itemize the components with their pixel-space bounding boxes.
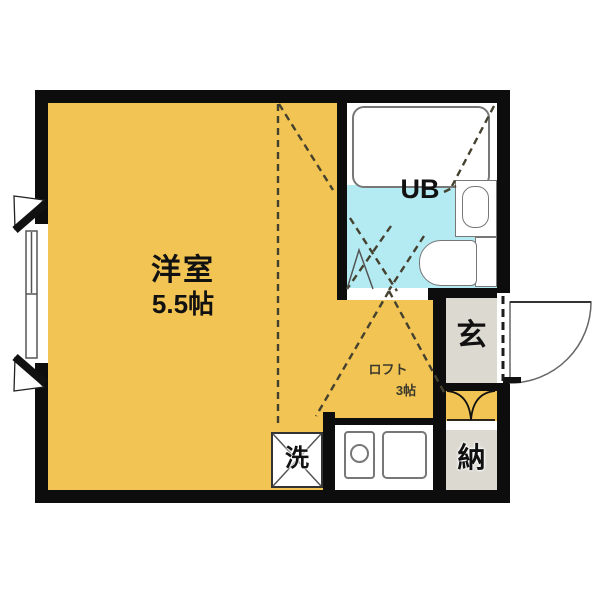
closet-front-floor [446, 391, 497, 421]
loft-name: ロフト [348, 363, 428, 376]
floorplan: 洋室 5.5帖 UB 玄 納 洗 ロフト 3帖 [0, 0, 600, 600]
washbasin-bowl [462, 186, 489, 228]
storage-threshold [446, 421, 497, 430]
stove-burner [350, 444, 369, 463]
main-room-size: 5.5帖 [128, 291, 238, 317]
loft-size: 3帖 [366, 384, 446, 397]
entrance-label: 玄 [446, 321, 497, 351]
unit-bath-label: UB [388, 176, 452, 203]
entry-doorway [497, 293, 510, 383]
window-opening [35, 224, 48, 363]
entry-door-swing [510, 302, 591, 383]
toilet-bowl [419, 240, 477, 286]
kitchen-sink [382, 431, 427, 479]
kitchen-left-wall [323, 412, 335, 503]
bath-door-opening [347, 288, 428, 300]
storage-label: 納 [446, 444, 497, 472]
main-room-name: 洋室 [128, 256, 238, 286]
washer-label: 洗 [271, 447, 323, 471]
kitchen-top-wall [335, 418, 433, 425]
toilet-tank [475, 237, 497, 287]
